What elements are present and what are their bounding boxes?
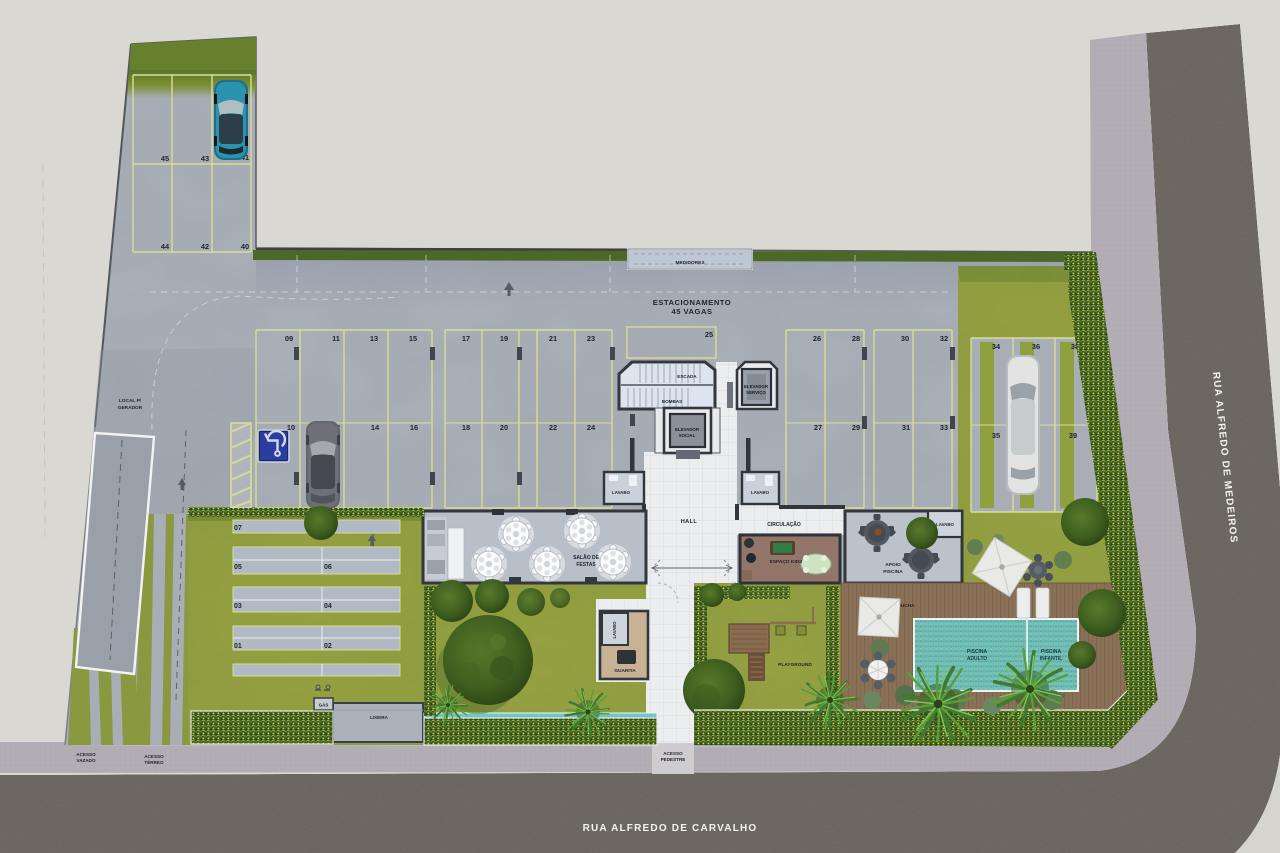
svg-text:SOCIAL: SOCIAL [679, 433, 696, 438]
svg-text:26: 26 [813, 334, 821, 343]
svg-text:ELEVADOR: ELEVADOR [675, 427, 700, 432]
svg-text:VAZADO: VAZADO [76, 758, 95, 763]
svg-text:16: 16 [410, 423, 418, 432]
svg-text:GÁS: GÁS [319, 703, 329, 708]
svg-text:21: 21 [549, 334, 557, 343]
svg-text:GUARITA: GUARITA [614, 668, 636, 674]
svg-text:TÉRREO: TÉRREO [144, 758, 164, 765]
svg-text:43: 43 [201, 154, 209, 163]
svg-text:LIXEIRA: LIXEIRA [370, 715, 389, 720]
svg-text:44: 44 [161, 242, 170, 251]
svg-text:33: 33 [940, 423, 948, 432]
svg-text:ADULTO: ADULTO [967, 656, 987, 662]
svg-text:ACESSO: ACESSO [144, 754, 164, 759]
svg-text:ESTACIONAMENTO: ESTACIONAMENTO [653, 298, 731, 307]
svg-text:27: 27 [814, 423, 822, 432]
svg-text:13: 13 [370, 334, 378, 343]
svg-text:06: 06 [324, 564, 332, 571]
svg-text:39: 39 [1069, 431, 1077, 440]
svg-text:LOCAL P/: LOCAL P/ [119, 398, 142, 404]
svg-text:19: 19 [500, 334, 508, 343]
svg-text:05: 05 [234, 564, 242, 571]
svg-text:22: 22 [549, 423, 557, 432]
svg-text:ACESSO: ACESSO [76, 752, 96, 757]
svg-text:APOIO: APOIO [885, 562, 901, 568]
svg-text:42: 42 [201, 242, 209, 251]
svg-text:LAVABO: LAVABO [936, 522, 954, 527]
svg-text:18: 18 [462, 423, 470, 432]
svg-text:PISCINA: PISCINA [967, 649, 988, 655]
svg-text:PEDESTRE: PEDESTRE [661, 757, 686, 762]
svg-text:LAVABO: LAVABO [612, 490, 631, 495]
svg-text:RUA ALFREDO DE CARVALHO: RUA ALFREDO DE CARVALHO [583, 823, 758, 834]
svg-text:28: 28 [852, 334, 860, 343]
svg-text:BOMBAS: BOMBAS [662, 399, 682, 404]
svg-text:40: 40 [241, 242, 249, 251]
svg-text:20: 20 [500, 423, 508, 432]
svg-text:34: 34 [992, 342, 1001, 351]
svg-text:11: 11 [332, 334, 340, 343]
svg-text:ESPAÇO KIDS: ESPAÇO KIDS [770, 559, 803, 565]
svg-text:02: 02 [324, 643, 332, 650]
svg-text:FESTAS: FESTAS [576, 562, 596, 568]
svg-text:INFANTIL: INFANTIL [1040, 656, 1063, 662]
svg-text:PISCINA: PISCINA [883, 569, 903, 575]
svg-text:15: 15 [409, 334, 417, 343]
svg-text:31: 31 [902, 423, 910, 432]
svg-text:35: 35 [992, 431, 1000, 440]
svg-text:36: 36 [1032, 342, 1040, 351]
svg-text:30: 30 [901, 334, 909, 343]
svg-text:09: 09 [285, 334, 293, 343]
svg-text:03: 03 [234, 603, 242, 610]
svg-text:45: 45 [161, 154, 169, 163]
svg-text:32: 32 [940, 334, 948, 343]
svg-text:23: 23 [587, 334, 595, 343]
svg-text:ACESSO: ACESSO [663, 751, 683, 756]
svg-text:04: 04 [324, 603, 332, 610]
svg-text:ELEVADOR: ELEVADOR [744, 384, 769, 389]
svg-text:LAVABO: LAVABO [751, 490, 770, 495]
svg-text:29: 29 [852, 423, 860, 432]
svg-text:GERADOR: GERADOR [118, 405, 143, 411]
svg-text:17: 17 [462, 334, 470, 343]
svg-text:SALÃO DE: SALÃO DE [573, 554, 600, 561]
svg-text:PLAYGROUND: PLAYGROUND [778, 662, 812, 668]
svg-text:PISCINA: PISCINA [1041, 649, 1062, 655]
svg-text:LAVABO: LAVABO [612, 621, 617, 639]
svg-text:HALL: HALL [681, 519, 698, 525]
svg-text:ESCADA: ESCADA [677, 374, 697, 379]
svg-text:24: 24 [587, 423, 596, 432]
svg-text:45 VAGAS: 45 VAGAS [672, 307, 713, 316]
svg-text:CIRCULAÇÃO: CIRCULAÇÃO [767, 521, 801, 528]
svg-text:MEDIDORES: MEDIDORES [675, 260, 705, 266]
svg-text:10: 10 [287, 423, 295, 432]
svg-text:25: 25 [705, 330, 713, 339]
svg-text:07: 07 [234, 525, 242, 532]
svg-text:01: 01 [234, 643, 242, 650]
svg-text:14: 14 [371, 423, 380, 432]
svg-text:SERVIÇO: SERVIÇO [746, 390, 766, 395]
